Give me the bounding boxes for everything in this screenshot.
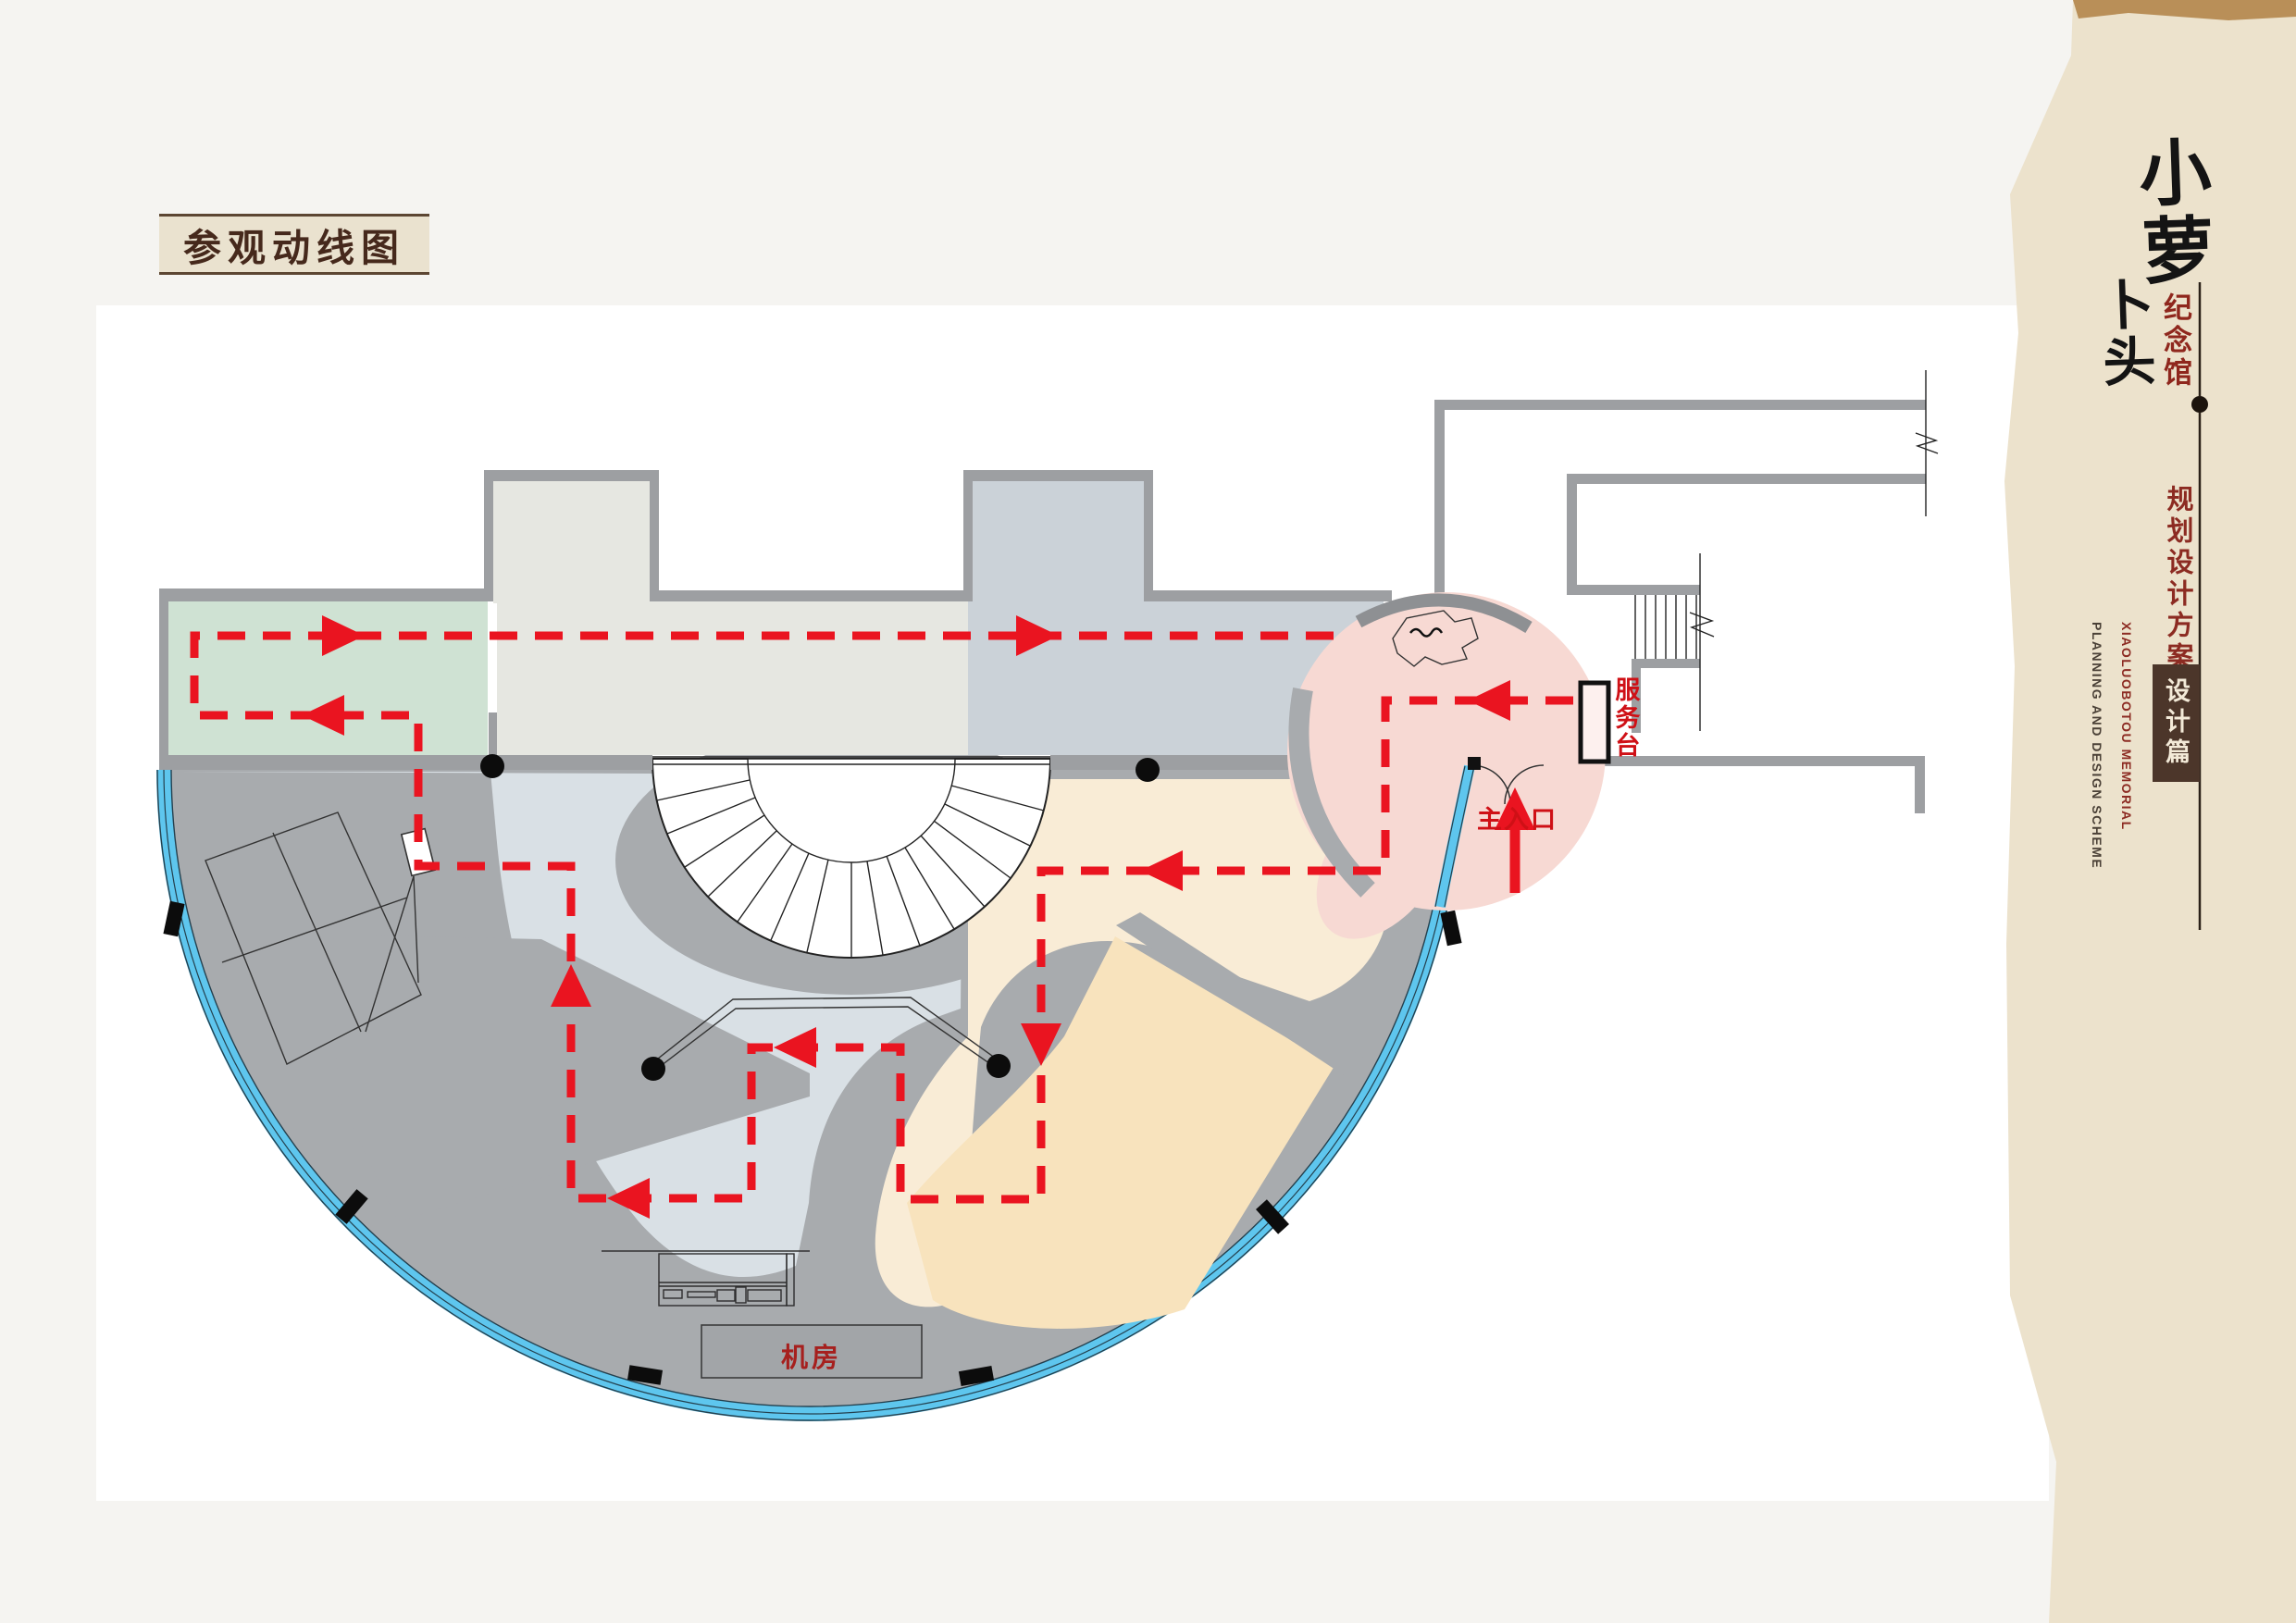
sidebar-scheme-cn: 规划设计方案 [2158,485,2197,674]
machine-room-label: 机房 [701,1336,922,1375]
sidebar-title-bottom: 卜头 [2084,277,2164,392]
sidebar-scheme-en-line2: PLANNING AND DESIGN SCHEME [2090,622,2104,869]
service-desk-label: 服务台 [1612,676,1638,760]
sidebar-dot [2191,396,2208,413]
sidebar-chapter-badge: 设计篇 [2153,664,2200,782]
sidebar-hall-label: 纪念馆 [2154,292,2196,390]
service-desk [1581,683,1608,762]
wing-b [973,479,1145,609]
sidebar-scheme-en-line1: XIAOLUOBOTOU MEMORIAL [2119,622,2134,831]
wing-a [493,479,651,609]
zone-main-hall [497,601,968,755]
presentation-board: 参观动线图 服务台 主入口 机房 小萝 卜头 纪念馆 规划设计方案 XIAOLU… [0,0,2296,1623]
main-entrance-label: 主入口 [1477,799,1558,836]
sidebar-title-top: 小萝 [2116,133,2226,292]
page-title: 参观动线图 [159,214,429,275]
